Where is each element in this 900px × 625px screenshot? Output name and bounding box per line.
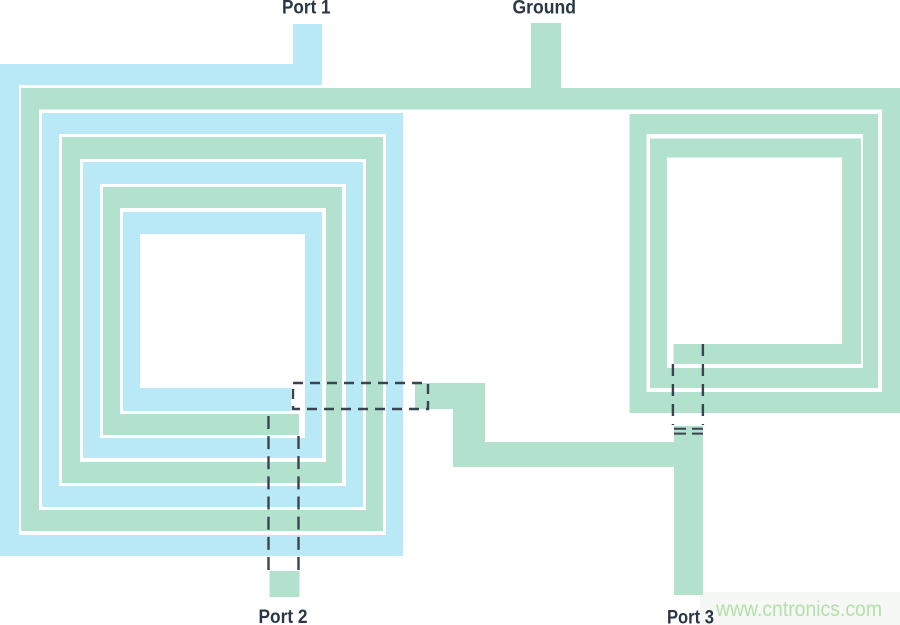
svg-text:Port 2: Port 2 [259,607,308,625]
svg-text:Ground: Ground [513,0,577,19]
svg-text:Port 3: Port 3 [667,608,714,625]
svg-text:www.cntronics.com: www.cntronics.com [715,598,882,621]
svg-text:Port 1: Port 1 [282,0,331,19]
